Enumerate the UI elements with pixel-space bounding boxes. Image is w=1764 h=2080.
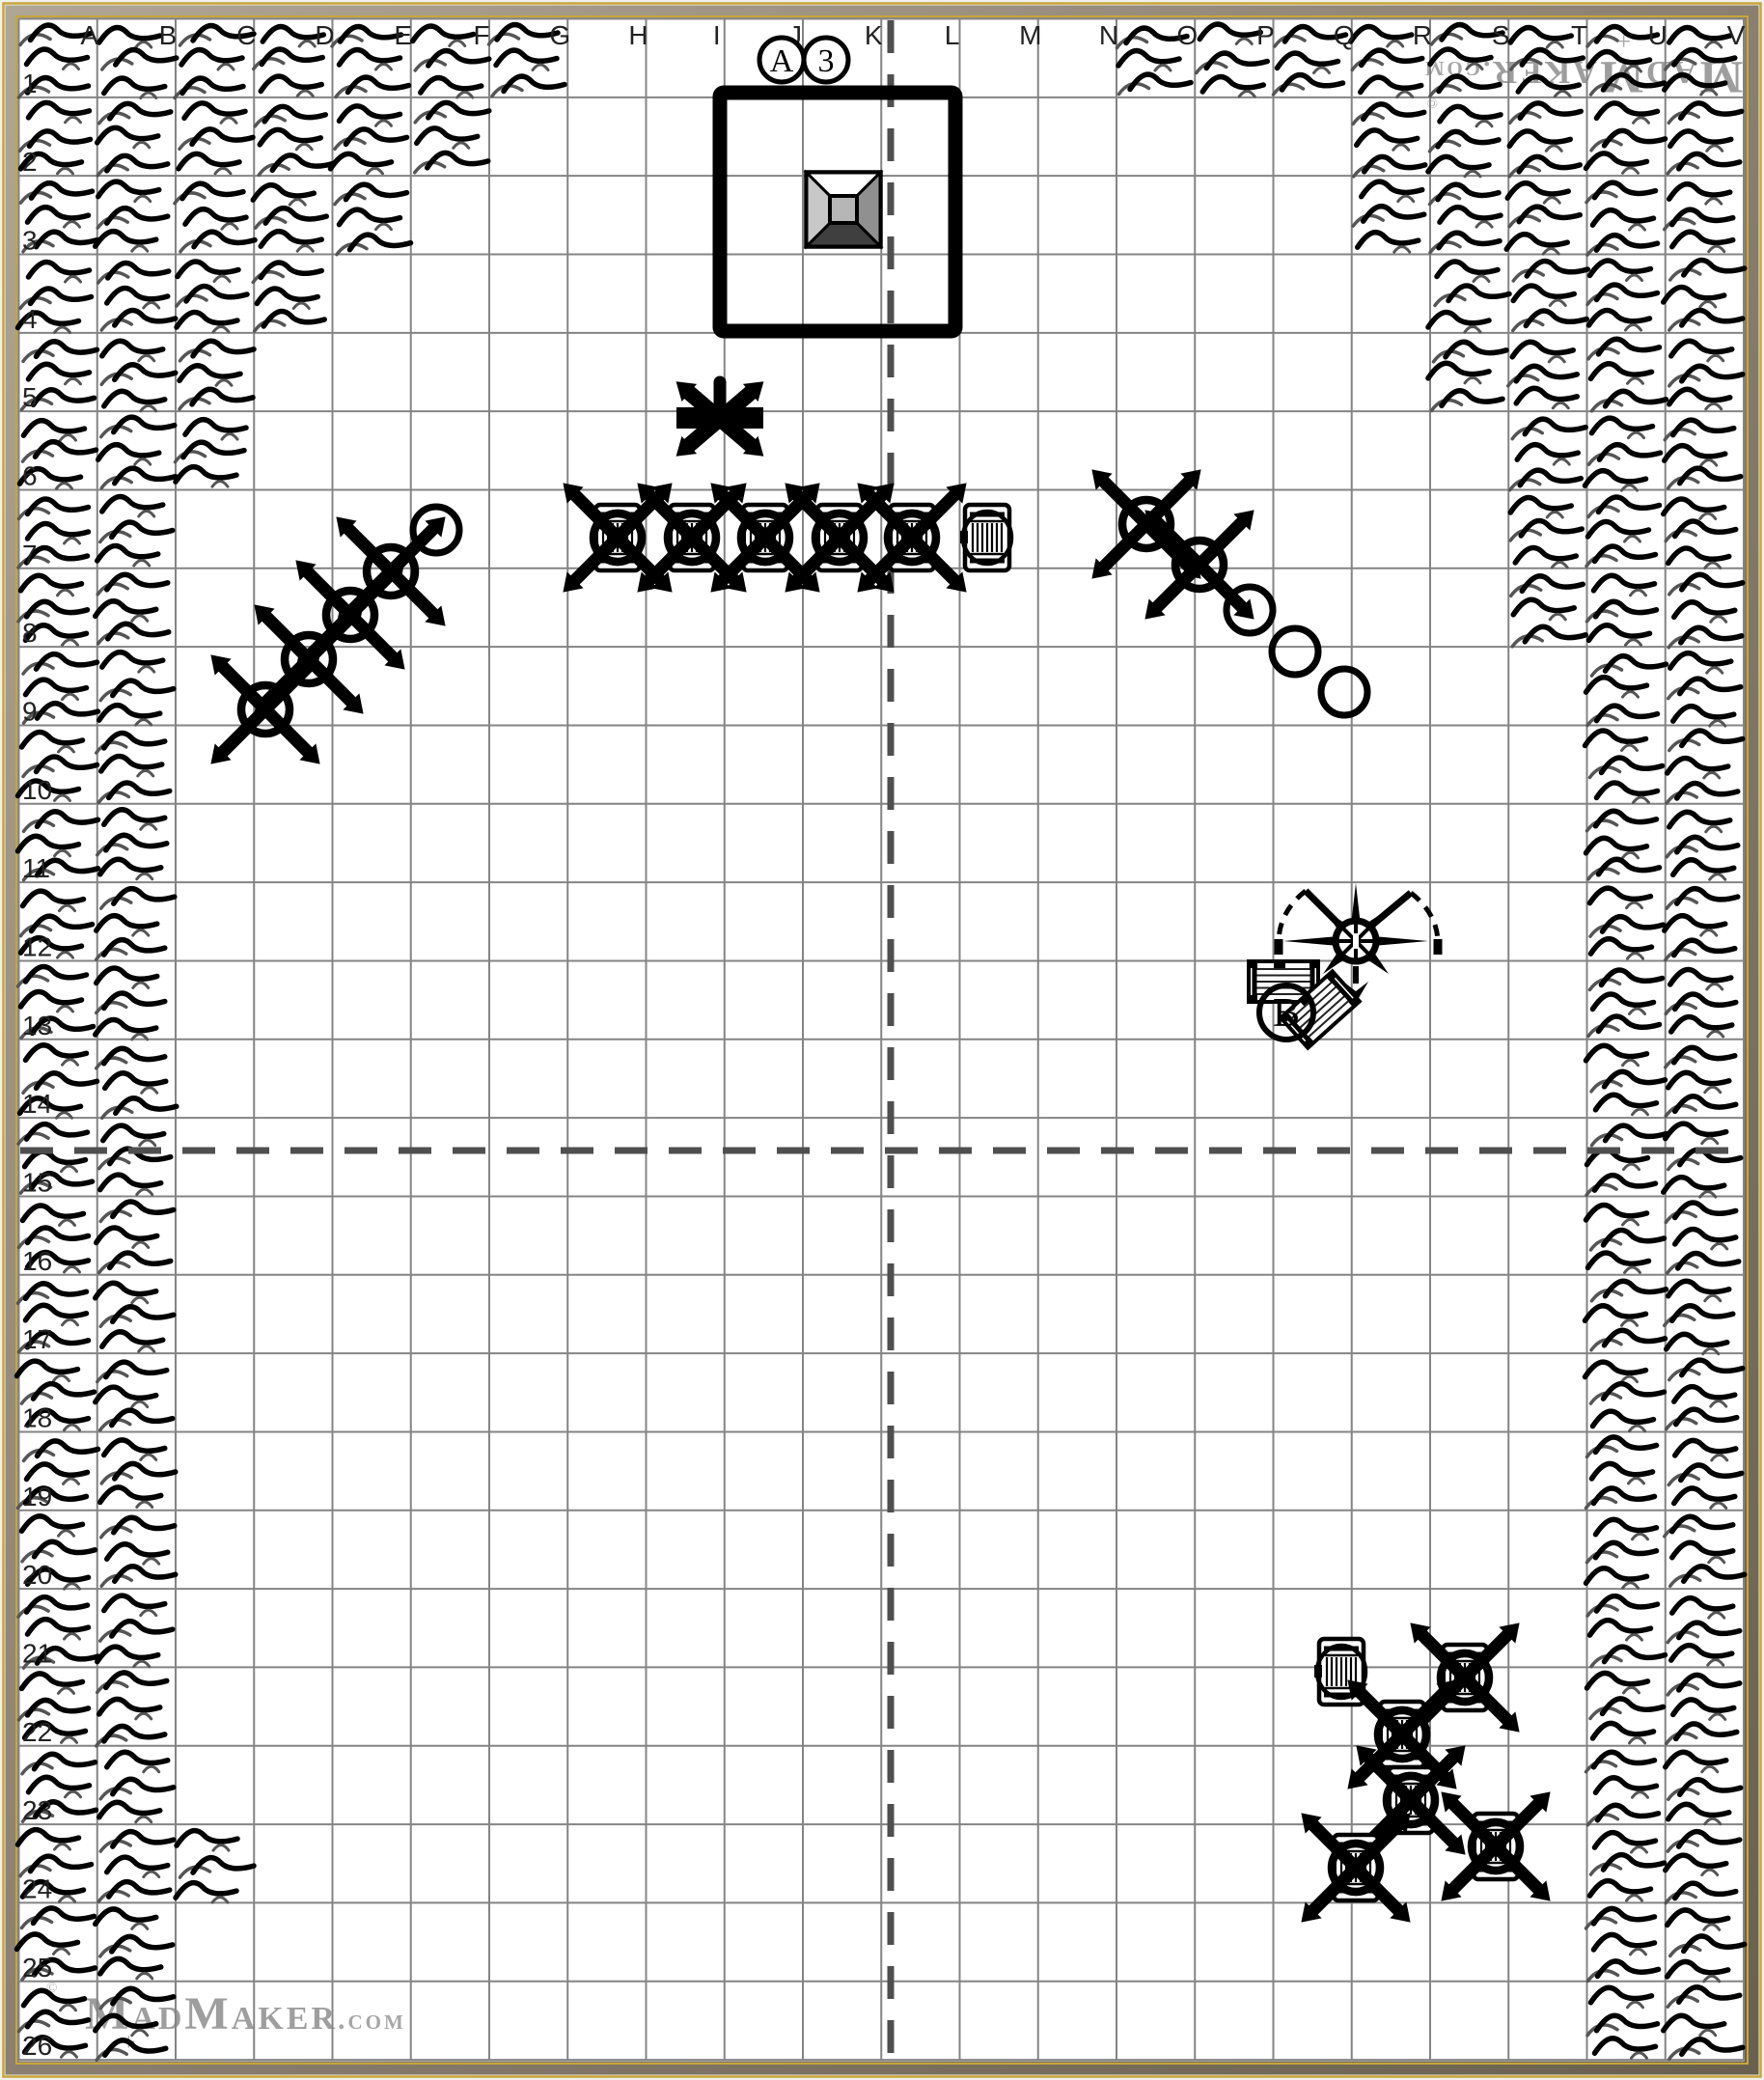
column-label: G [549,20,570,50]
row-label: 17 [22,1324,52,1354]
row-label: 14 [22,1089,52,1119]
column-label: D [315,20,334,50]
row-label: 2 [22,147,38,177]
column-label: L [945,20,960,50]
map-page: MadMaker.com©+MadMaker.com©+ABCDEFGHIJKL… [0,0,1764,2080]
row-label: 7 [22,540,38,569]
row-label: 22 [22,1717,52,1747]
column-label: U [1648,20,1668,50]
row-label: 6 [22,460,38,490]
row-label: 4 [22,304,38,334]
column-label: V [1727,20,1746,50]
row-label: 3 [22,225,38,255]
row-label: 11 [22,853,50,883]
column-label: C [236,20,256,50]
column-label: E [394,20,412,50]
row-label: 13 [22,1011,52,1040]
row-label: 26 [22,2031,52,2061]
column-label: N [1099,20,1118,50]
row-label: 12 [22,931,52,961]
row-label: 8 [22,618,38,648]
column-label: B [159,20,178,50]
row-label: 23 [22,1795,52,1825]
circle-a-label: A [770,43,794,79]
row-label: 9 [22,696,38,726]
column-label: M [1019,20,1041,50]
row-label: 20 [22,1560,52,1590]
column-label: T [1571,20,1587,50]
column-label: Q [1334,20,1355,50]
row-label: 5 [22,382,38,412]
column-label: P [1256,20,1275,50]
column-label: R [1413,20,1432,50]
column-label: S [1492,20,1510,50]
row-label: 1 [22,69,38,98]
row-label: 15 [22,1167,52,1197]
circle-3-label: 3 [818,43,835,79]
column-label: K [865,20,883,50]
column-label: O [1176,20,1198,50]
row-label: 10 [22,775,52,805]
column-label: A [80,20,98,50]
cart-token[interactable] [960,505,1011,570]
row-label: 18 [22,1402,52,1432]
battle-map: MadMaker.com©+MadMaker.com©+ABCDEFGHIJKL… [0,0,1764,2080]
row-label: 25 [22,1953,52,1983]
row-label: 16 [22,1246,52,1276]
column-label: I [713,20,721,50]
row-label: 24 [22,1873,52,1903]
row-label: 21 [22,1638,52,1668]
column-label: F [473,20,489,50]
row-label: 19 [22,1482,52,1511]
column-label: H [628,20,648,50]
circle-b-label: B [1273,991,1300,1036]
